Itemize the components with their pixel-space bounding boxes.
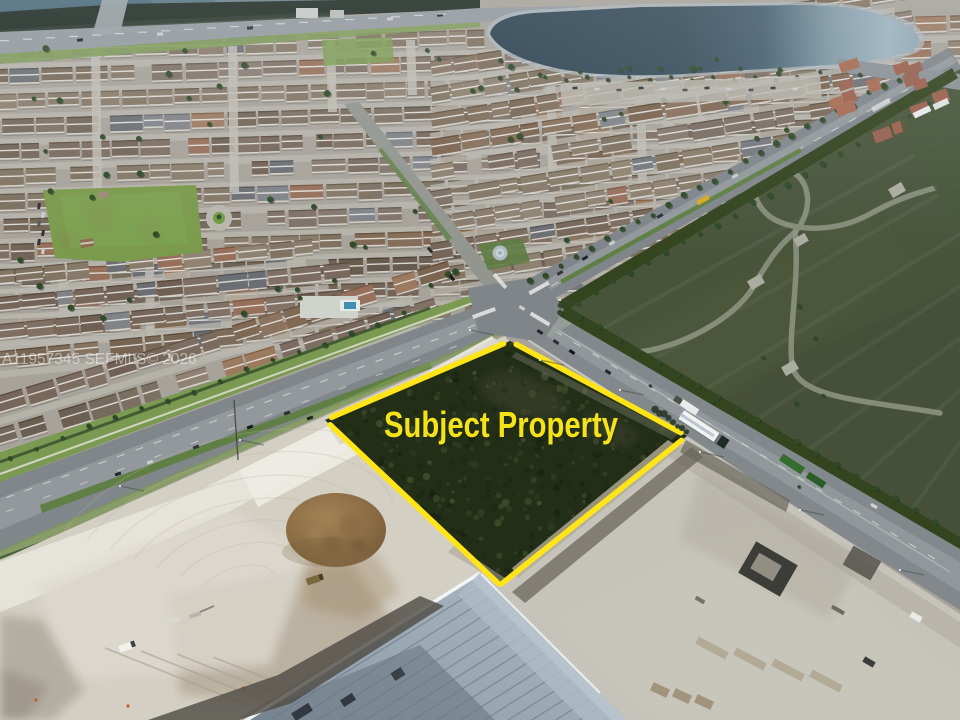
svg-text:A11957345 SEFMLS© 2026: A11957345 SEFMLS© 2026 xyxy=(2,351,197,368)
svg-text:Subject Property: Subject Property xyxy=(384,404,618,445)
